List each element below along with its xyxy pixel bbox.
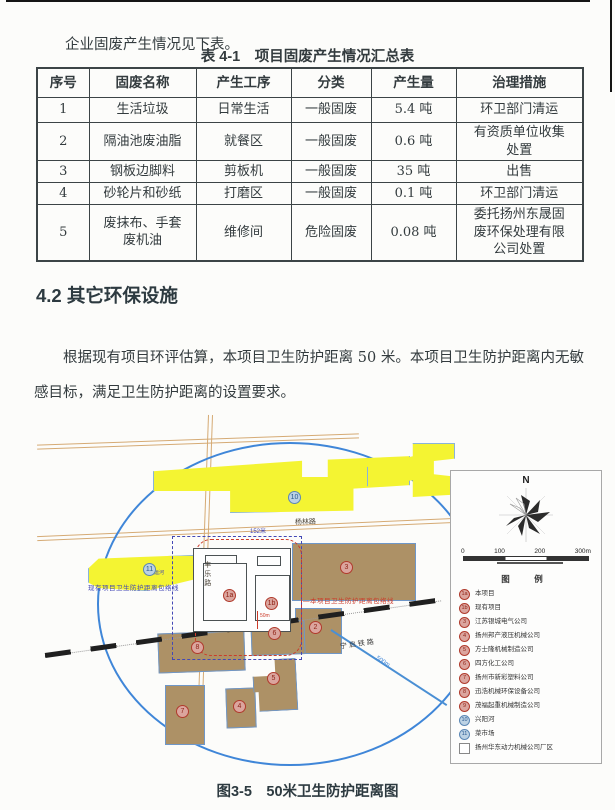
protection-distance-map: 杨林路 丰乐路 宁启铁路 500m 152米 50m 现有项目卫生防护距离包络线… (45, 415, 605, 775)
cell: 一般固废 (291, 98, 371, 123)
col-header: 分类 (291, 68, 371, 98)
legend-label: 本项目 (475, 590, 495, 598)
cell: 钢板边脚料 (89, 161, 196, 183)
scan-artifact-top-line (6, 0, 590, 2)
road-label-yanglin: 杨林路 (295, 519, 316, 527)
legend-marker-icon: 9 (459, 701, 470, 712)
cell: 出售 (456, 161, 583, 183)
legend-item: 8 迅浩机械环保设备公司 (459, 688, 593, 698)
legend-marker-icon: 5 (459, 645, 470, 656)
distance-50m-label: 50m (260, 614, 270, 620)
legend-marker-icon: 3 (459, 617, 470, 628)
legend-label: 现有项目 (475, 604, 501, 612)
body-paragraph: 根据现有项目环评估算，本项目卫生防护距离 50 米。本项目卫生防护距离内无敏感目… (34, 341, 584, 411)
legend-item: 5 方士隆机械制造公司 (459, 646, 593, 656)
factory-shed-2 (257, 556, 281, 566)
cell: 委托扬州东晟固 废环保处理有限 公司处置 (456, 205, 583, 261)
legend-marker-icon: 11 (459, 729, 470, 740)
legend-marker-icon: 8 (459, 687, 470, 698)
marker-3: 3 (340, 561, 353, 574)
cell: 有资质单位收集 处置 (456, 123, 583, 161)
legend-label: 兴阳河 (475, 716, 495, 724)
marker-4: 4 (233, 700, 246, 713)
table-row: 3 钢板边脚料 剪板机 一般固废 35 吨 出售 (37, 161, 583, 183)
cell: 隔油池废油脂 (89, 123, 196, 161)
cell: 3 (37, 161, 89, 183)
col-header: 序号 (37, 68, 89, 98)
legend-title: 图 例 (459, 573, 593, 585)
legend-item: 1a 本项目 (459, 590, 593, 600)
legend-marker-icon: 7 (459, 673, 470, 684)
table-row: 4 砂轮片和砂纸 打磨区 一般固废 0.1 吨 环卫部门清运 (37, 183, 583, 205)
cell: 5.4 吨 (371, 98, 456, 123)
table-row: 1 生活垃圾 日常生活 一般固废 5.4 吨 环卫部门清运 (37, 98, 583, 123)
road-label-fengle: 丰乐路 (203, 561, 211, 588)
cell: 0.1 吨 (371, 183, 456, 205)
col-header: 固废名称 (89, 68, 196, 98)
legend-marker-icon: 6 (459, 659, 470, 670)
section-heading: 4.2 其它环保设施 (36, 282, 178, 308)
legend-area-icon (459, 743, 470, 754)
marker-5: 5 (267, 672, 280, 685)
cell: 一般固废 (291, 161, 371, 183)
legend-item: 6 四方化工公司 (459, 660, 593, 670)
cell: 废抹布、手套 废机油 (89, 205, 196, 261)
north-label: N (459, 475, 593, 486)
distance-152m-label: 152米 (250, 529, 266, 536)
legend-item: 1b 现有项目 (459, 604, 593, 614)
scale-tick: 0 (461, 548, 465, 555)
marker-7: 7 (176, 705, 189, 718)
legend-item: 9 茂福起重机械制造公司 (459, 702, 593, 712)
legend-label: 茂福起重机械制造公司 (475, 702, 540, 710)
legend-label: 菜市场 (475, 730, 495, 738)
legend-item: 10 兴阳河 (459, 716, 593, 726)
scale-tick: 200 (534, 548, 545, 555)
cell: 环卫部门清运 (456, 183, 583, 205)
cell: 一般固废 (291, 123, 371, 161)
building-3 (292, 543, 416, 601)
cell: 日常生活 (196, 98, 291, 123)
figure-caption: 图3-5 50米卫生防护距离图 (0, 780, 615, 801)
project-envelope-label: —本项目卫生防护距离包络线 (303, 598, 423, 605)
legend-marker-icon: 10 (459, 715, 470, 726)
legend-label: 扬州邦产液压机械公司 (475, 632, 540, 640)
table-row: 5 废抹布、手套 废机油 维修间 危险固废 0.08 吨 委托扬州东晟固 废环保… (37, 205, 583, 261)
legend-label: 扬州市新彩塑料公司 (475, 674, 534, 682)
marker-8: 8 (191, 641, 204, 654)
cell: 5 (37, 205, 89, 261)
legend-marker-icon: 1a (459, 589, 470, 600)
document-page: 企业固废产生情况见下表。 表 4-1 项目固废产生情况汇总表 序号 固废名称 产… (0, 0, 615, 810)
cell: 0.08 吨 (371, 205, 456, 261)
distance-50m-tick (257, 611, 258, 629)
waste-summary-table: 序号 固废名称 产生工序 分类 产生量 治理措施 1 生活垃圾 日常生活 一般固… (36, 67, 584, 262)
legend-label: 江苏银城电气公司 (475, 618, 527, 626)
marker-2: 2 (309, 621, 322, 634)
cell: 4 (37, 183, 89, 205)
legend-item: 11 菜市场 (459, 730, 593, 740)
scale-tick: 300m (575, 548, 591, 555)
cell: 危险固废 (291, 205, 371, 261)
map-legend: N 0 (450, 470, 602, 764)
marker-11: 11 (143, 563, 156, 576)
col-header: 治理措施 (456, 68, 583, 98)
legend-marker-icon: 1b (459, 603, 470, 614)
existing-envelope-label: 现有项目卫生防护距离包络线 (88, 585, 208, 592)
cell: 打磨区 (196, 183, 291, 205)
legend-label: 迅浩机械环保设备公司 (475, 688, 540, 696)
table-row: 2 隔油池废油脂 就餐区 一般固废 0.6 吨 有资质单位收集 处置 (37, 123, 583, 161)
legend-item: 3 江苏银城电气公司 (459, 618, 593, 628)
marker-1b: 1b (265, 597, 278, 610)
cell: 维修间 (196, 205, 291, 261)
legend-marker-icon: 4 (459, 631, 470, 642)
legend-label: 扬州华东动力机械公司厂区 (475, 744, 585, 752)
cell: 一般固废 (291, 183, 371, 205)
cell: 就餐区 (196, 123, 291, 161)
col-header: 产生量 (371, 68, 456, 98)
scalebar-ticks: 0 100 200 300m (461, 548, 591, 555)
wind-rose-icon (494, 486, 558, 544)
legend-item: 扬州华东动力机械公司厂区 (459, 744, 593, 754)
legend-label: 四方化工公司 (475, 660, 514, 668)
scalebar-secondary (497, 562, 563, 564)
col-header: 产生工序 (196, 68, 291, 98)
cell: 剪板机 (196, 161, 291, 183)
table-title: 表 4-1 项目固废产生情况汇总表 (0, 45, 615, 66)
marker-6: 6 (268, 627, 281, 640)
scale-tick: 100 (494, 548, 505, 555)
cell: 1 (37, 98, 89, 123)
cell: 生活垃圾 (89, 98, 196, 123)
cell: 砂轮片和砂纸 (89, 183, 196, 205)
cell: 2 (37, 123, 89, 161)
marker-10: 10 (288, 491, 301, 504)
table-header-row: 序号 固废名称 产生工序 分类 产生量 治理措施 (37, 68, 583, 98)
scalebar (463, 556, 589, 561)
marker-1a: 1a (223, 589, 236, 602)
legend-label: 方士隆机械制造公司 (475, 646, 534, 654)
legend-item: 4 扬州邦产液压机械公司 (459, 632, 593, 642)
legend-item: 7 扬州市新彩塑料公司 (459, 674, 593, 684)
cell: 环卫部门清运 (456, 98, 583, 123)
cell: 35 吨 (371, 161, 456, 183)
cell: 0.6 吨 (371, 123, 456, 161)
